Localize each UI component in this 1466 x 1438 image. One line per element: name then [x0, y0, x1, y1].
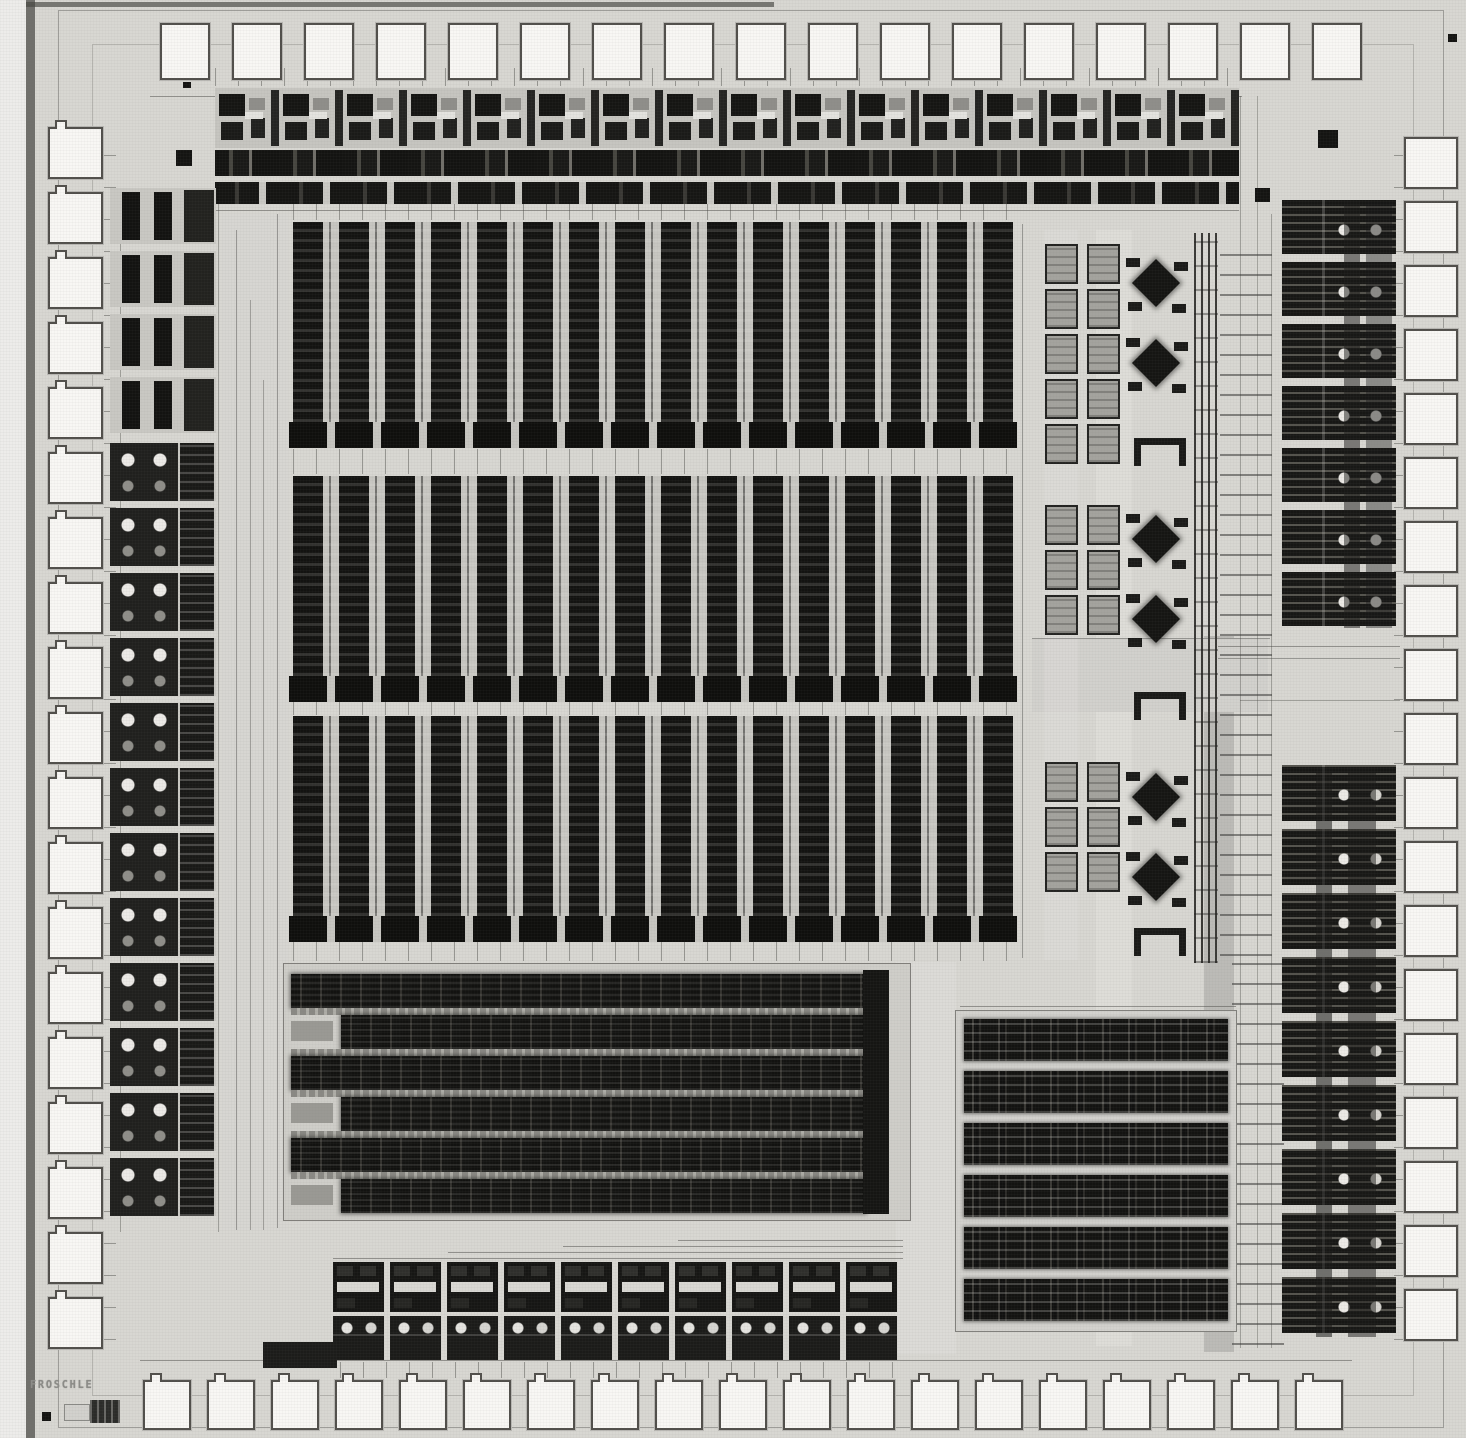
- decap-mass: [184, 316, 214, 368]
- cell-feature: [285, 122, 307, 140]
- cell-feature: [847, 90, 855, 146]
- analog-block: [1087, 424, 1120, 464]
- bond-pad-right: [1404, 265, 1458, 317]
- io-bus-bar: [1348, 767, 1376, 1337]
- cell-feature: [761, 98, 777, 110]
- routing-row: [291, 1008, 863, 1015]
- cell-feature: [1115, 94, 1141, 116]
- analog-contact: [1128, 382, 1142, 391]
- cell-feature: [736, 1298, 754, 1308]
- cell-feature: [1147, 118, 1161, 138]
- bond-pad-bottom: [591, 1380, 639, 1430]
- analog-block: [1087, 807, 1120, 847]
- analog-block: [1087, 244, 1120, 284]
- bond-pad-top: [592, 23, 642, 80]
- bond-pad-left: [48, 582, 103, 634]
- decap-bar: [122, 318, 140, 366]
- bright-slot: [850, 1282, 892, 1292]
- analog-block: [1087, 505, 1120, 545]
- cell-feature: [411, 94, 437, 116]
- io-cell: [504, 1316, 555, 1360]
- io-cell-logic: [180, 508, 214, 566]
- bond-pad-left: [48, 972, 103, 1024]
- cell-feature: [475, 94, 501, 116]
- cell-feature: [827, 118, 841, 138]
- cell-feature: [603, 94, 629, 116]
- cell-feature: [1083, 118, 1097, 138]
- io-cell-right: [1282, 1277, 1396, 1333]
- alignment-mark: [176, 150, 192, 166]
- io-cell: [732, 1316, 783, 1360]
- pad-notch: [918, 1373, 930, 1382]
- pad-notch: [150, 1373, 162, 1382]
- gate-array-row: [964, 1227, 1228, 1269]
- analog-cell: [1124, 764, 1190, 838]
- via-channel: [215, 68, 1239, 86]
- bond-pad-left: [48, 777, 103, 829]
- cell-feature: [315, 118, 329, 138]
- bond-pad-bottom: [335, 1380, 383, 1430]
- io-cell-logic: [180, 833, 214, 891]
- cell-feature: [531, 1266, 547, 1276]
- logo-block: [90, 1400, 120, 1423]
- routing-wire: [263, 380, 264, 1230]
- driver-cell: [561, 1262, 612, 1312]
- io-bus-bar: [1366, 202, 1392, 628]
- alignment-mark: [1255, 188, 1270, 202]
- cell-feature: [861, 122, 883, 140]
- analog-block: [1045, 852, 1078, 892]
- bond-pad-top: [304, 23, 354, 80]
- io-cell: [789, 1316, 840, 1360]
- cell-array-feet: [289, 422, 1017, 448]
- cell-feature: [793, 1266, 809, 1276]
- cell-feature: [1017, 98, 1033, 110]
- analog-contact: [1128, 558, 1142, 567]
- cell-feature: [477, 122, 499, 140]
- cell-feature: [850, 1298, 868, 1308]
- pad-notch: [55, 835, 67, 844]
- scribe-line-top: [26, 2, 774, 7]
- analog-block: [1045, 595, 1078, 635]
- io-cell-left: [110, 638, 216, 696]
- io-cell-logic: [180, 1028, 214, 1086]
- io-cell: [846, 1316, 897, 1360]
- cell-feature: [757, 112, 775, 119]
- analog-block: [1045, 334, 1078, 374]
- filler-block: [263, 1342, 337, 1368]
- io-cell: [333, 1316, 384, 1360]
- bond-pad-top: [1312, 23, 1362, 80]
- cell-feature: [1077, 112, 1095, 119]
- cell-feature: [859, 94, 885, 116]
- cell-feature: [699, 118, 713, 138]
- bond-pad-top: [808, 23, 858, 80]
- analog-contact: [1128, 638, 1142, 647]
- bond-pad-right: [1404, 393, 1458, 445]
- bond-pad-left: [48, 322, 103, 374]
- bond-pad-right: [1404, 1033, 1458, 1085]
- bond-pad-top: [232, 23, 282, 80]
- pad-notch: [55, 1290, 67, 1299]
- analog-contact: [1126, 338, 1140, 347]
- io-cell-pads: [110, 1093, 178, 1151]
- analog-block: [1087, 762, 1120, 802]
- driver-cell: [663, 88, 727, 148]
- cell-feature: [622, 1298, 640, 1308]
- bond-pad-bottom: [1295, 1380, 1343, 1430]
- io-cell-pads: [110, 703, 178, 761]
- cell-feature: [635, 118, 649, 138]
- analog-contact: [1126, 852, 1140, 861]
- io-cell-left: [110, 1028, 216, 1086]
- cell-feature: [501, 112, 519, 119]
- cell-feature: [667, 94, 693, 116]
- cell-feature: [271, 90, 279, 146]
- pad-notch: [55, 185, 67, 194]
- bond-pad-right: [1404, 521, 1458, 573]
- bond-pad-left: [48, 712, 103, 764]
- analog-cell: [1124, 586, 1190, 660]
- cell-feature: [249, 98, 265, 110]
- cell-stub: [291, 1021, 333, 1041]
- analog-contact: [1172, 384, 1186, 393]
- driver-cell: [447, 1262, 498, 1312]
- cell-feature: [394, 1298, 412, 1308]
- via-channel: [340, 1362, 900, 1378]
- pad-notch: [598, 1373, 610, 1382]
- std-cell-row: [291, 974, 866, 1008]
- bond-pad-bottom: [143, 1380, 191, 1430]
- driver-cell: [1111, 88, 1175, 148]
- pad-notch: [55, 1160, 67, 1169]
- analog-block: [1045, 807, 1078, 847]
- bond-pad-left: [48, 647, 103, 699]
- bond-pad-left: [48, 1167, 103, 1219]
- analog-block: [1087, 289, 1120, 329]
- output-cell-strip: [333, 1238, 903, 1362]
- cell-feature: [373, 112, 391, 119]
- io-cell-left: [110, 898, 216, 956]
- step-wire: [678, 1240, 903, 1241]
- bond-pad-bottom: [1167, 1380, 1215, 1430]
- bright-slot: [451, 1282, 493, 1292]
- pad-notch: [55, 1225, 67, 1234]
- routing-row: [291, 1049, 863, 1056]
- gate-array-row: [964, 1175, 1228, 1217]
- cell-feature: [413, 122, 435, 140]
- cell-array-columns: [293, 222, 1013, 422]
- bond-pad-top: [952, 23, 1002, 80]
- routing-row: [291, 1131, 863, 1138]
- bond-pad-bottom: [975, 1380, 1023, 1430]
- analog-block: [1087, 379, 1120, 419]
- pad-notch: [55, 575, 67, 584]
- io-cell: [675, 1316, 726, 1360]
- analog-contact: [1174, 518, 1188, 527]
- bond-pad-bottom: [1103, 1380, 1151, 1430]
- io-cell-logic: [180, 573, 214, 631]
- connector-cell: [1134, 692, 1186, 720]
- driver-cell: [535, 88, 599, 148]
- cell-feature: [1141, 112, 1159, 119]
- io-cell-right: [1282, 765, 1396, 821]
- std-cell-row: [341, 1097, 866, 1131]
- cell-feature: [731, 94, 757, 116]
- via-channel: [293, 449, 1015, 474]
- bond-pad-left: [48, 1232, 103, 1284]
- logo-frame: [64, 1404, 90, 1421]
- driver-cell: [983, 88, 1047, 148]
- bond-pad-left: [48, 1102, 103, 1154]
- bond-pad-right: [1404, 201, 1458, 253]
- bond-pad-left: [48, 1037, 103, 1089]
- bond-pad-left: [48, 907, 103, 959]
- io-cell-logic: [180, 1158, 214, 1216]
- analog-contact: [1174, 342, 1188, 351]
- driver-cell: [791, 88, 855, 148]
- bond-pad-left: [48, 387, 103, 439]
- gate-array-row: [964, 1071, 1228, 1113]
- cell-feature: [719, 90, 727, 146]
- step-wire: [333, 1258, 903, 1259]
- cell-feature: [571, 118, 585, 138]
- cell-feature: [313, 98, 329, 110]
- io-cell-left: [110, 963, 216, 1021]
- bright-slot: [793, 1282, 835, 1292]
- cell-feature: [923, 94, 949, 116]
- cell-feature: [759, 1266, 775, 1276]
- cell-feature: [1051, 94, 1077, 116]
- analog-contact: [1172, 640, 1186, 649]
- via-channel: [293, 702, 1015, 715]
- pad-notch: [1046, 1373, 1058, 1382]
- routing-wire: [236, 230, 237, 1230]
- pad-notch: [406, 1373, 418, 1382]
- cell-feature: [474, 1266, 490, 1276]
- io-cell-pads: [110, 768, 178, 826]
- bond-pad-bottom: [1039, 1380, 1087, 1430]
- gate-array-row: [964, 1279, 1228, 1321]
- cell-row-blocks: [215, 182, 1239, 204]
- cell-row-dense: [215, 150, 1239, 176]
- io-cell-pads: [110, 638, 178, 696]
- cell-feature: [622, 1266, 638, 1276]
- cell-feature: [816, 1266, 832, 1276]
- bond-pad-top: [520, 23, 570, 80]
- pad-notch: [55, 1095, 67, 1104]
- bond-pad-left: [48, 257, 103, 309]
- scribe-line-left: [26, 0, 35, 1438]
- decap-cell: [110, 188, 216, 244]
- cell-feature: [349, 122, 371, 140]
- bond-pad-left: [48, 1297, 103, 1349]
- pad-notch: [1110, 1373, 1122, 1382]
- analog-contact: [1128, 302, 1142, 311]
- pad-notch: [662, 1373, 674, 1382]
- cell-feature: [1231, 90, 1239, 146]
- bond-pad-top: [448, 23, 498, 80]
- decap-bar: [154, 255, 172, 303]
- analog-block: [1087, 334, 1120, 374]
- routing-wire: [250, 300, 251, 1230]
- driver-cell: [919, 88, 983, 148]
- cell-feature: [337, 1266, 353, 1276]
- cell-feature: [793, 1298, 811, 1308]
- analog-contact: [1172, 560, 1186, 569]
- analog-cell: [1124, 844, 1190, 918]
- cell-feature: [399, 90, 407, 146]
- bond-pad-top: [1240, 23, 1290, 80]
- vertical-bus-lines: [1194, 233, 1218, 963]
- pad-notch: [214, 1373, 226, 1382]
- bond-pad-top: [880, 23, 930, 80]
- cell-feature: [1013, 112, 1031, 119]
- driver-cell: [732, 1262, 783, 1312]
- alignment-mark: [42, 1412, 51, 1421]
- cell-feature: [783, 90, 791, 146]
- decap-bar: [122, 255, 140, 303]
- io-cell-right: [1282, 1085, 1396, 1141]
- bond-pad-top: [1096, 23, 1146, 80]
- io-cell-left: [110, 703, 216, 761]
- io-cell-right: [1282, 829, 1396, 885]
- analog-block: [1045, 379, 1078, 419]
- cell-feature: [1117, 122, 1139, 140]
- alignment-mark: [183, 82, 191, 88]
- pad-notch: [55, 120, 67, 129]
- connector-cell: [1134, 438, 1186, 466]
- cell-feature: [891, 118, 905, 138]
- bond-pad-top: [160, 23, 210, 80]
- cell-feature: [1019, 118, 1033, 138]
- pad-notch: [342, 1373, 354, 1382]
- bond-pad-top: [376, 23, 426, 80]
- cell-feature: [588, 1266, 604, 1276]
- pad-notch: [55, 705, 67, 714]
- io-cell-left: [110, 1158, 216, 1216]
- analog-contact: [1126, 594, 1140, 603]
- pad-notch: [278, 1373, 290, 1382]
- decap-bar: [122, 381, 140, 429]
- decap-bar: [154, 192, 172, 240]
- cell-feature: [507, 118, 521, 138]
- cell-feature: [679, 1266, 695, 1276]
- pad-notch: [55, 315, 67, 324]
- cell-feature: [379, 118, 393, 138]
- bright-slot: [337, 1282, 379, 1292]
- bond-pad-top: [1168, 23, 1218, 80]
- chip-die-photo: FROSCHLE: [0, 0, 1466, 1438]
- pad-notch: [790, 1373, 802, 1382]
- std-cell-row: [291, 1138, 866, 1172]
- cell-feature: [569, 98, 585, 110]
- routing-wire: [277, 214, 278, 1228]
- io-cell-left: [110, 1093, 216, 1151]
- cell-feature: [795, 94, 821, 116]
- bond-pad-bottom: [911, 1380, 959, 1430]
- cell-array-feet: [289, 916, 1017, 942]
- cell-feature: [508, 1298, 526, 1308]
- cell-feature: [885, 112, 903, 119]
- cell-feature: [441, 98, 457, 110]
- cell-feature: [655, 90, 663, 146]
- cell-feature: [1081, 98, 1097, 110]
- analog-block: [1045, 244, 1078, 284]
- gate-array-row: [964, 1019, 1228, 1061]
- cell-feature: [539, 94, 565, 116]
- decap-cell: [110, 251, 216, 307]
- routing-rungs: [1232, 955, 1284, 1345]
- cell-feature: [377, 98, 393, 110]
- driver-cell: [343, 88, 407, 148]
- via-channel: [293, 942, 1015, 961]
- cell-feature: [733, 122, 755, 140]
- bond-pad-bottom: [399, 1380, 447, 1430]
- bright-slot: [736, 1282, 778, 1292]
- bond-pad-right: [1404, 1161, 1458, 1213]
- driver-cell: [727, 88, 791, 148]
- gate-array-block: [955, 1010, 1237, 1332]
- std-cell-row: [341, 1015, 866, 1049]
- cell-feature: [565, 112, 583, 119]
- cell-feature: [360, 1266, 376, 1276]
- bond-pad-left: [48, 452, 103, 504]
- analog-block: [1087, 550, 1120, 590]
- cell-feature: [1205, 112, 1223, 119]
- cell-feature: [1181, 122, 1203, 140]
- io-cell-left: [110, 768, 216, 826]
- bond-pad-right: [1404, 585, 1458, 637]
- io-cell-logic: [180, 768, 214, 826]
- pad-notch: [55, 1030, 67, 1039]
- cell-feature: [219, 94, 245, 116]
- bond-pad-left: [48, 517, 103, 569]
- driver-cell: [846, 1262, 897, 1312]
- cell-feature: [541, 122, 563, 140]
- pad-notch: [55, 250, 67, 259]
- cell-feature: [873, 1266, 889, 1276]
- pad-notch: [55, 380, 67, 389]
- analog-contact: [1174, 598, 1188, 607]
- io-cell-right: [1282, 1021, 1396, 1077]
- cell-feature: [221, 122, 243, 140]
- step-wire: [448, 1252, 903, 1253]
- bond-pad-bottom: [463, 1380, 511, 1430]
- connector-cell: [1134, 928, 1186, 956]
- bond-pad-right: [1404, 777, 1458, 829]
- io-cell-right: [1282, 957, 1396, 1013]
- cell-feature: [1145, 98, 1161, 110]
- bond-pad-top: [1024, 23, 1074, 80]
- pad-notch: [982, 1373, 994, 1382]
- pad-notch: [55, 445, 67, 454]
- decap-mass: [184, 379, 214, 431]
- io-cell-pads: [110, 898, 178, 956]
- driver-cell: [279, 88, 343, 148]
- io-cell-left: [110, 443, 216, 501]
- bond-pad-right: [1404, 969, 1458, 1021]
- analog-contact: [1126, 258, 1140, 267]
- analog-block: [1087, 852, 1120, 892]
- pad-notch: [55, 965, 67, 974]
- io-cell-logic: [180, 703, 214, 761]
- routing-wire: [218, 190, 219, 1232]
- cell-feature: [443, 118, 457, 138]
- cell-feature: [1053, 122, 1075, 140]
- driver-cell: [1175, 88, 1239, 148]
- routing-channel: [222, 214, 288, 1230]
